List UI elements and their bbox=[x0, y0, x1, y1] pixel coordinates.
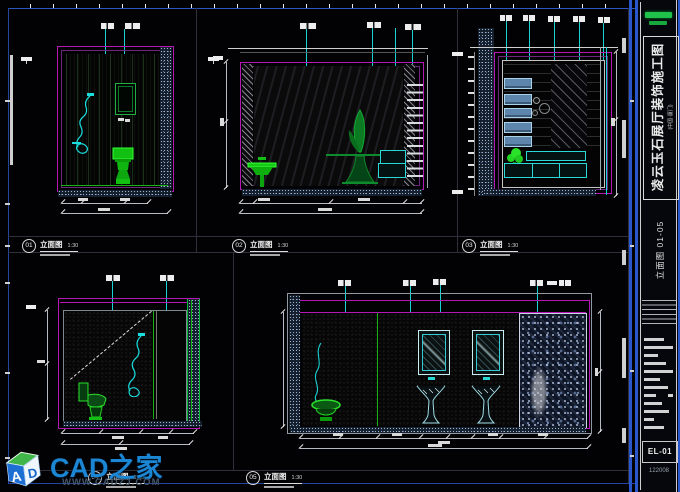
view-scale: 1:30 bbox=[278, 243, 289, 249]
view-label-05: 05 立面图1:30 bbox=[246, 471, 302, 488]
view-title: 立面图 bbox=[264, 472, 287, 481]
project-title: 凌云玉石展厅装饰施工图 bbox=[647, 43, 666, 192]
project-title-rotated: 凌云玉石展厅装饰施工图 (中国·厦门) bbox=[643, 36, 677, 198]
view-title: 立面图 bbox=[250, 240, 273, 249]
watermark: A D CAD之家 WWW.CADZJ.COM bbox=[2, 446, 222, 492]
view-label-03: 03 立面图1:30 bbox=[462, 239, 518, 256]
view-subtext-bar bbox=[250, 254, 280, 256]
view-scale: 1:30 bbox=[292, 475, 303, 481]
sheet-number: EL-01 bbox=[642, 441, 678, 463]
view-subtext-bar bbox=[480, 254, 510, 256]
view-subtext-bar bbox=[264, 486, 294, 488]
project-subtitle: (中国·厦门) bbox=[667, 105, 674, 130]
view-number-bubble: 01 bbox=[22, 239, 36, 253]
sheet-name: 立面图 01-05 bbox=[654, 221, 666, 280]
view-subtext-bar bbox=[40, 254, 70, 256]
view-number-bubble: 02 bbox=[232, 239, 246, 253]
view-title: 立面图 bbox=[40, 240, 63, 249]
cadzj-cube-logo-icon: A D bbox=[0, 444, 49, 492]
sheet-name-rotated: 立面图 01-05 bbox=[645, 203, 675, 297]
date-code: 122008 bbox=[642, 468, 676, 474]
studio-logo-tagline bbox=[649, 21, 667, 25]
title-block-table-rows bbox=[642, 300, 676, 327]
view-number-bubble: 05 bbox=[246, 471, 260, 485]
watermark-site-url: WWW.CADZJ.COM bbox=[62, 477, 161, 488]
view-number-bubble: 03 bbox=[462, 239, 476, 253]
view-title: 立面图 bbox=[480, 240, 503, 249]
cad-drawing-sheet: 01 立面图1:30 02 立面图1:30 03 立面图1:30 04 立面图1… bbox=[0, 0, 680, 492]
view-scale: 1:30 bbox=[508, 243, 519, 249]
view-scale: 1:30 bbox=[68, 243, 79, 249]
view-label-02: 02 立面图1:30 bbox=[232, 239, 288, 256]
studio-logo bbox=[645, 12, 672, 18]
view-label-01: 01 立面图1:30 bbox=[22, 239, 78, 256]
title-block: 凌云玉石展厅装饰施工图 (中国·厦门) 立面图 01-05 EL-01 1220… bbox=[0, 0, 680, 492]
